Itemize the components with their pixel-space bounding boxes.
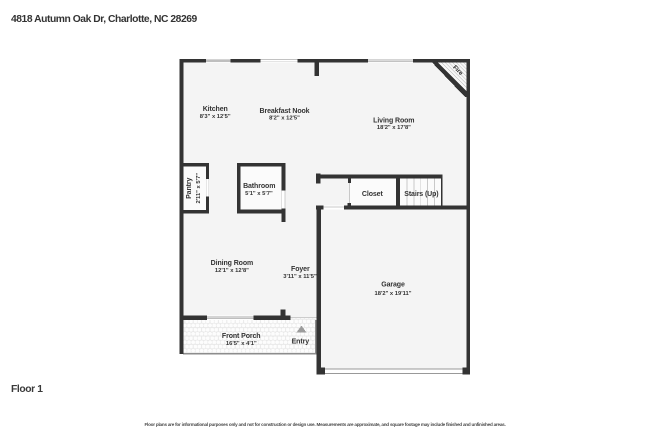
svg-text:5'1" x 5'7": 5'1" x 5'7" (245, 191, 273, 197)
svg-text:Entry: Entry (292, 339, 310, 346)
svg-text:Stairs (Up): Stairs (Up) (404, 191, 438, 198)
svg-text:Closet: Closet (362, 191, 384, 198)
svg-text:8'3" x 12'5": 8'3" x 12'5" (200, 114, 231, 120)
svg-text:Breakfast Nook: Breakfast Nook (260, 108, 310, 115)
svg-text:8'2" x 12'5": 8'2" x 12'5" (269, 115, 300, 121)
svg-text:Front Porch: Front Porch (222, 333, 261, 340)
svg-text:Bathroom: Bathroom (243, 183, 275, 190)
svg-text:Foyer: Foyer (291, 266, 310, 273)
svg-text:12'1" x 12'8": 12'1" x 12'8" (215, 268, 249, 274)
svg-text:Dining Room: Dining Room (211, 260, 253, 267)
svg-text:Garage: Garage (381, 281, 405, 288)
svg-text:Living Room: Living Room (373, 118, 414, 125)
svg-text:18'2" x 17'8": 18'2" x 17'8" (377, 125, 411, 131)
svg-text:Kitchen: Kitchen (203, 106, 228, 113)
svg-text:3'11" x 11'5": 3'11" x 11'5" (283, 274, 317, 280)
svg-text:2'11" x 5'7": 2'11" x 5'7" (196, 173, 202, 204)
svg-text:18'2" x 19'11": 18'2" x 19'11" (375, 291, 412, 297)
svg-text:16'5" x 4'1": 16'5" x 4'1" (226, 341, 257, 347)
svg-text:Pantry: Pantry (186, 178, 193, 199)
